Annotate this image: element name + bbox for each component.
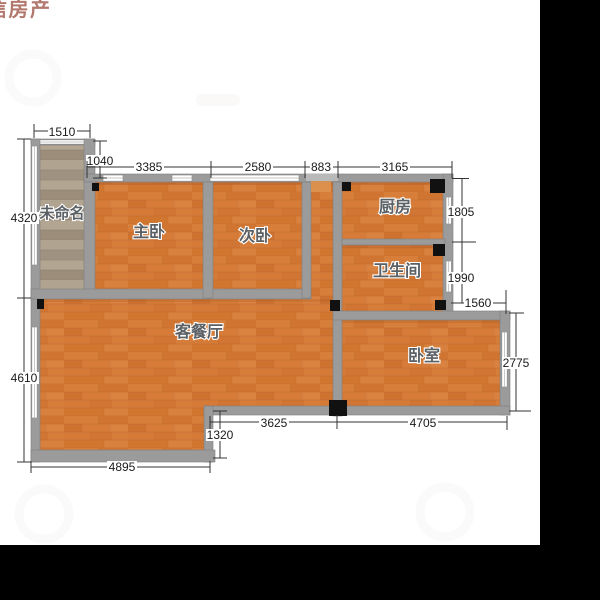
svg-text:4320: 4320: [11, 211, 38, 225]
svg-text:883: 883: [311, 160, 331, 174]
svg-text:客餐厅: 客餐厅: [175, 322, 223, 341]
svg-text:3625: 3625: [261, 416, 288, 430]
svg-text:1560: 1560: [465, 296, 492, 310]
svg-text:主卧: 主卧: [133, 222, 165, 241]
svg-text:3165: 3165: [382, 160, 409, 174]
svg-text:信房产: 信房产: [0, 0, 52, 21]
svg-text:1990: 1990: [448, 271, 475, 285]
svg-text:2775: 2775: [503, 356, 530, 370]
svg-text:3385: 3385: [136, 160, 163, 174]
svg-text:1510: 1510: [49, 125, 76, 139]
svg-text:卧室: 卧室: [408, 346, 440, 365]
svg-text:未命名: 未命名: [38, 204, 84, 222]
svg-text:1040: 1040: [87, 154, 114, 168]
svg-text:厨房: 厨房: [379, 197, 411, 216]
svg-text:卫生间: 卫生间: [373, 261, 421, 280]
svg-text:4895: 4895: [109, 460, 136, 474]
svg-text:次卧: 次卧: [239, 226, 271, 245]
svg-text:4610: 4610: [11, 371, 38, 385]
svg-text:4705: 4705: [410, 416, 437, 430]
svg-text:1320: 1320: [207, 428, 234, 442]
svg-text:1805: 1805: [448, 205, 475, 219]
svg-text:2580: 2580: [245, 160, 272, 174]
